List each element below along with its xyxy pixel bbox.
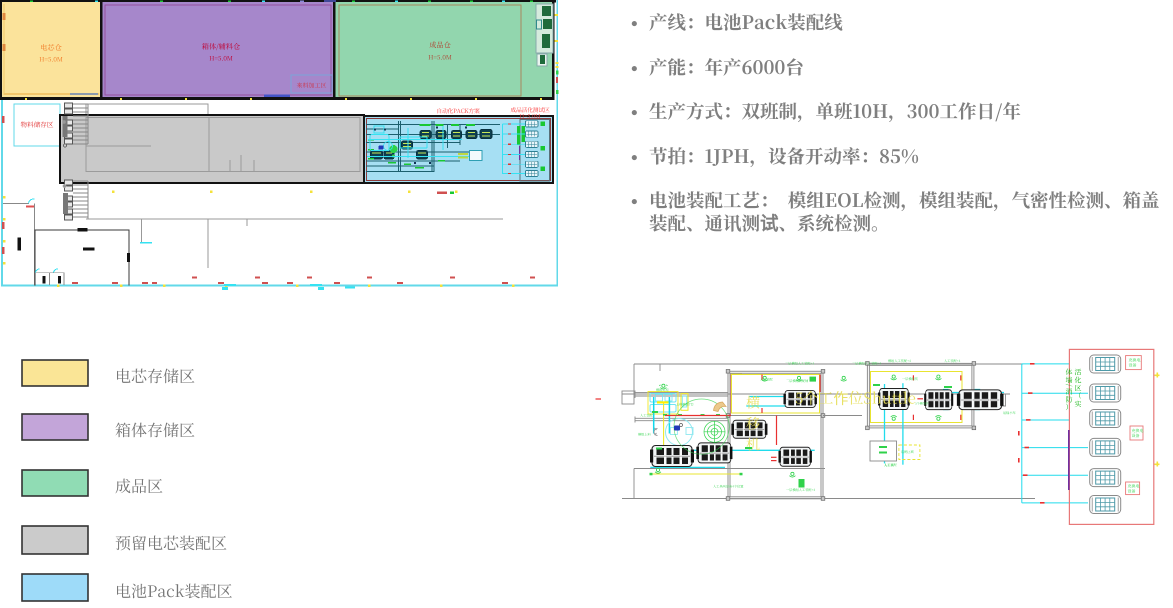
svg-text:5个工作位Shuttle: 5个工作位Shuttle xyxy=(795,388,916,409)
svg-text:物料储存区: 物料储存区 xyxy=(21,119,54,129)
svg-text:二层模组装配辅: 二层模组装配辅 xyxy=(786,378,809,383)
svg-text:一层模组人工装配+4: 一层模组人工装配+4 xyxy=(786,487,815,492)
svg-text:自动化PACK方案: 自动化PACK方案 xyxy=(436,106,480,115)
svg-text:二层模组人工装配+1: 二层模组人工装配+1 xyxy=(785,361,814,366)
svg-text:模组电柜: 模组电柜 xyxy=(656,387,670,392)
svg-text:箱体/辅料仓: 箱体/辅料仓 xyxy=(202,42,240,52)
svg-text:人工具两边各4个位置: 人工具两边各4个位置 xyxy=(713,484,744,489)
svg-text:人工装配: 人工装配 xyxy=(760,377,774,382)
svg-text:成品仓: 成品仓 xyxy=(429,41,451,51)
svg-text:移: 移 xyxy=(746,414,760,434)
svg-text:5个模组位: 5个模组位 xyxy=(915,402,929,406)
svg-text:H=5.0M: H=5.0M xyxy=(520,112,541,120)
svg-text:设备: 设备 xyxy=(1132,433,1140,439)
svg-text:H=5.0M: H=5.0M xyxy=(428,53,452,62)
svg-text:选配区域: 选配区域 xyxy=(901,449,915,454)
svg-text:体墙/消防）: 体墙/消防） xyxy=(1064,368,1074,411)
svg-text:机: 机 xyxy=(746,435,760,455)
svg-text:模组上料: 模组上料 xyxy=(638,432,652,437)
svg-text:一层模组装: 一层模组装 xyxy=(902,376,919,381)
svg-text:活化区（实: 活化区（实 xyxy=(1073,368,1083,408)
svg-text:模组人工装配+4: 模组人工装配+4 xyxy=(888,358,911,363)
svg-text:来料加工区: 来料加工区 xyxy=(296,81,326,90)
svg-text:设备: 设备 xyxy=(1129,363,1137,369)
svg-text:人工具: 人工具 xyxy=(884,463,894,468)
svg-text:运输小车: 运输小车 xyxy=(1003,410,1017,415)
svg-text:人工装配+4: 人工装配+4 xyxy=(944,358,961,363)
svg-text:横: 横 xyxy=(746,393,760,413)
svg-text:人工装配: 人工装配 xyxy=(640,412,654,417)
svg-text:H=5.0M: H=5.0M xyxy=(39,55,63,64)
svg-text:设备: 设备 xyxy=(1128,489,1136,495)
svg-text:上料模组7台: 上料模组7台 xyxy=(676,402,694,407)
svg-text:电芯仓: 电芯仓 xyxy=(40,43,62,53)
svg-text:H=5.0M: H=5.0M xyxy=(209,54,233,63)
svg-text:二层模组人工装配+1: 二层模组人工装配+1 xyxy=(852,361,881,366)
